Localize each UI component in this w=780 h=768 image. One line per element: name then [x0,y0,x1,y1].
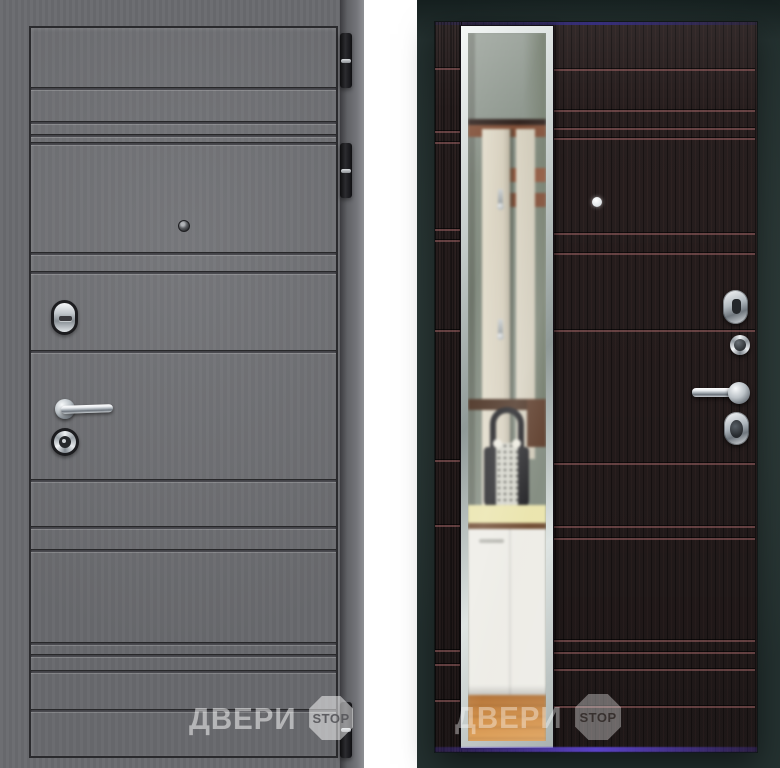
right-door-main-panel [554,22,755,752]
panel-groove [554,640,755,642]
panel-groove [554,526,755,528]
reflection-cabinet [468,529,546,695]
panel-groove [554,706,755,708]
panel-groove [31,654,336,657]
panel-groove [435,240,461,242]
peephole [178,220,190,232]
left-door-photo[interactable]: ДВЕРИ STOP [0,0,364,768]
reflection-counter-top [468,505,546,523]
panel-groove [435,650,461,652]
panel-groove [554,253,755,255]
panel-groove [31,549,336,552]
reflection-wood-floor [468,695,546,741]
panel-groove [31,134,336,137]
mirror-reflection [468,33,546,741]
panel-groove [554,138,755,140]
panel-groove [554,330,755,332]
panel-groove [31,670,336,673]
handle-lever [61,404,113,414]
door-hinge [340,33,352,88]
watermark-brand-text: ДВЕРИ [189,703,296,734]
reflection-cabinet-shadow [468,685,546,695]
panel-groove [435,142,461,144]
panel-groove [435,229,461,231]
watermark: ДВЕРИ STOP [189,696,353,740]
escutcheon [723,290,748,324]
right-door-left-stile [435,22,462,752]
panel-groove [554,463,755,465]
reflection-coat-hook [498,189,503,207]
left-door-leaf: ДВЕРИ STOP [29,26,338,758]
handle-rosette [728,382,750,404]
cylinder-lock [51,428,79,456]
door-hinge [340,702,352,758]
panel-groove [31,121,336,124]
night-latch-escutcheon [51,300,78,335]
reflection-side-panel [527,399,546,447]
oval-cylinder-lock [724,412,749,445]
panel-groove [31,526,336,529]
panel-groove [435,460,461,462]
right-door-photo[interactable]: ДВЕРИ STOP [417,0,780,768]
reflection-scarf [496,443,518,509]
reflection-cabinet-seam [509,529,511,695]
panel-groove [435,131,461,133]
mirror-glass [468,33,546,741]
panel-groove [31,350,336,353]
cylinder-core [59,436,71,448]
panel-groove [554,652,755,654]
panel-groove [31,252,336,255]
panel-groove [31,87,336,90]
panel-groove [435,68,461,70]
panel-groove [435,525,461,527]
reflection-cabinet-handle [479,539,504,543]
panel-groove [435,664,461,666]
panel-groove [554,538,755,540]
panel-groove [554,110,755,112]
panel-groove [31,271,336,274]
panel-groove [554,233,755,235]
right-door-leaf: ДВЕРИ STOP [435,22,757,752]
panel-groove [31,142,336,145]
door-hinge [340,143,352,198]
panel-groove [31,479,336,482]
cylinder-lock [730,335,750,355]
reflection-coat-hook [498,319,503,337]
left-door-edge-strip [340,0,364,768]
thumbturn-slot [59,316,72,321]
panel-groove [31,709,336,712]
panel-groove [31,642,336,645]
panel-groove [554,69,755,71]
door-products-composite-image: ДВЕРИ STOP [0,0,780,768]
panel-groove [435,330,461,332]
door-mirror [460,25,554,749]
peephole [592,197,602,207]
panel-groove [435,700,461,702]
panel-groove [554,128,755,130]
panel-groove [554,669,755,671]
